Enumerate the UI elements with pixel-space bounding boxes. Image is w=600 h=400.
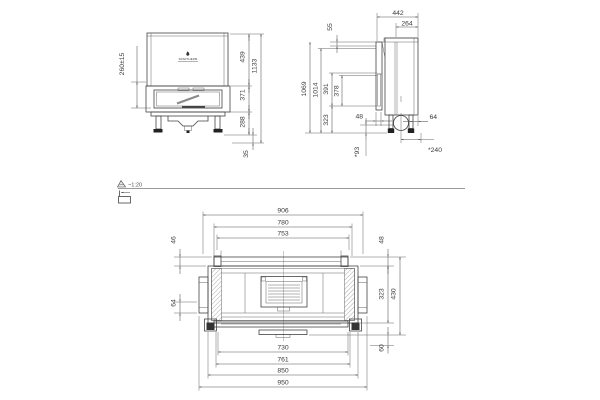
dim-front-upper-height: 439 [240,51,247,63]
dim-side-top: 55 [327,23,334,31]
dim-plan-width-a: 906 [277,208,289,215]
side-view-dimensions: 442 264 55 1069 1014 391 378 323 48 [301,10,442,157]
side-door-frame [376,42,382,110]
dim-front-base-height: 288 [240,116,247,128]
glass-reflection [177,96,199,104]
dim-side-front-offset: 48 [355,114,363,121]
dim-front-total-height: 1133 [252,58,259,73]
dim-plan-width-e: 761 [277,357,289,364]
scale-note: ~1:20 [118,181,466,203]
dim-plan-width-d: 730 [277,345,289,352]
fireplace-dimension-drawing: SPARTHERM [0,0,600,400]
scale-note-text: ~1:20 [128,183,142,189]
dim-side-rear-offset: 64 [430,114,438,121]
front-foot-right [214,129,223,133]
dim-plan-back-left: 46 [171,236,178,244]
dim-side-height-total: 1069 [301,81,308,96]
flue-grill [261,277,307,312]
dim-side-base: 323 [323,114,330,126]
front-leg-right [215,116,220,129]
corner-post-right [352,323,360,331]
dim-front-feet-height: 35 [243,150,250,158]
technical-drawing-page: SPARTHERM [0,0,600,400]
plan-view-body [199,251,367,342]
dim-plan-front-right: 60 [379,344,386,352]
dim-plan-width-c: 753 [277,231,289,238]
plan-door-handle [259,330,307,335]
dim-side-duct-depth: *240 [428,147,442,154]
front-foot-left [154,129,163,133]
brand-logo-text: SPARTHERM [179,57,198,61]
side-view-body [376,38,418,134]
refractory-wall-left [212,269,222,321]
dim-side-glass-b: 378 [334,85,341,97]
front-view-dimensions: 260±15 439 371 288 1133 35 [119,34,264,158]
dim-plan-side-left: 64 [171,299,178,307]
dim-plan-width-g: 950 [277,380,289,387]
dim-side-height-inner: 1014 [313,82,320,97]
front-leg-left [156,116,161,129]
dim-plan-back-right: 48 [379,236,386,244]
dim-plan-width-f: 850 [277,368,289,375]
brand-logo: SPARTHERM [178,51,198,61]
dim-side-duct-height: *93 [354,147,361,157]
dim-plan-depth-b: 430 [391,288,398,300]
scale-ruler-icon [118,181,126,187]
side-leg-front [389,115,393,129]
projection-symbol-icon [119,191,131,204]
dim-plan-width-b: 780 [277,220,289,227]
refractory-wall-right [345,269,355,321]
plan-view-dimensions: 906 780 753 46 64 48 323 430 [171,208,407,391]
corner-post-left [207,323,215,331]
dim-front-door-height: 371 [240,89,247,101]
dim-side-depth: 442 [392,10,404,17]
side-view: 442 264 55 1069 1014 391 378 323 48 [301,10,442,157]
dim-front-door-lift: 260±15 [119,52,126,75]
front-view: SPARTHERM [119,33,264,158]
dim-plan-depth-a: 323 [379,288,386,300]
dim-side-top-depth: 264 [401,21,413,28]
dim-side-glass-a: 391 [323,83,330,95]
plan-view: 906 780 753 46 64 48 323 430 [171,208,407,391]
front-view-body: SPARTHERM [146,33,230,133]
